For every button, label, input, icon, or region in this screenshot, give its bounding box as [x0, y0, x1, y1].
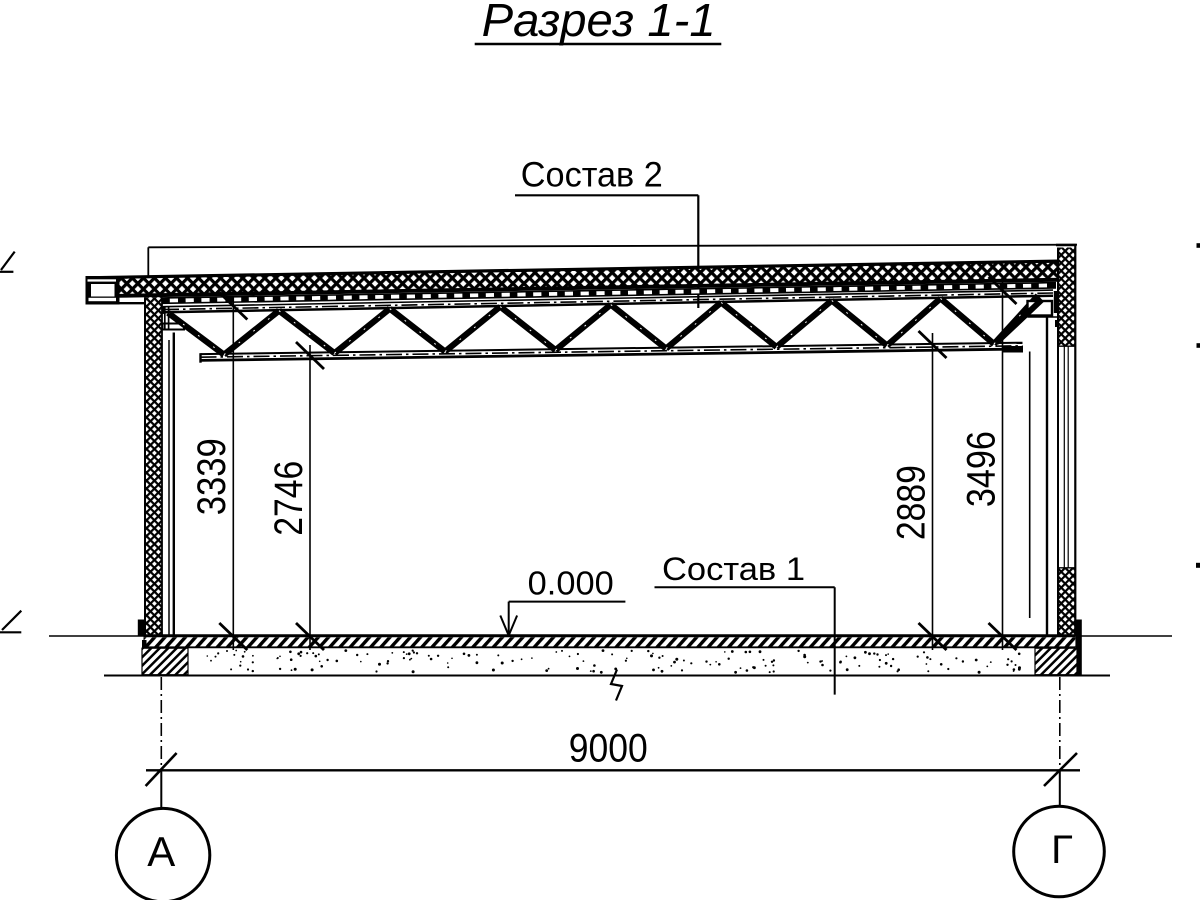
- svg-text:3496: 3496: [959, 431, 1003, 507]
- svg-text:А: А: [147, 828, 175, 875]
- svg-text:0.000: 0.000: [528, 564, 614, 601]
- svg-text:Г: Г: [1051, 828, 1073, 872]
- svg-text:Разрез 1-1: Разрез 1-1: [482, 0, 716, 46]
- svg-text:3339: 3339: [190, 438, 234, 515]
- svg-text:9000: 9000: [569, 726, 648, 770]
- svg-text:2746: 2746: [267, 461, 311, 536]
- svg-text:2889: 2889: [889, 465, 933, 540]
- svg-text:Состав 2: Состав 2: [521, 156, 663, 195]
- svg-text:Состав 1: Состав 1: [662, 551, 805, 587]
